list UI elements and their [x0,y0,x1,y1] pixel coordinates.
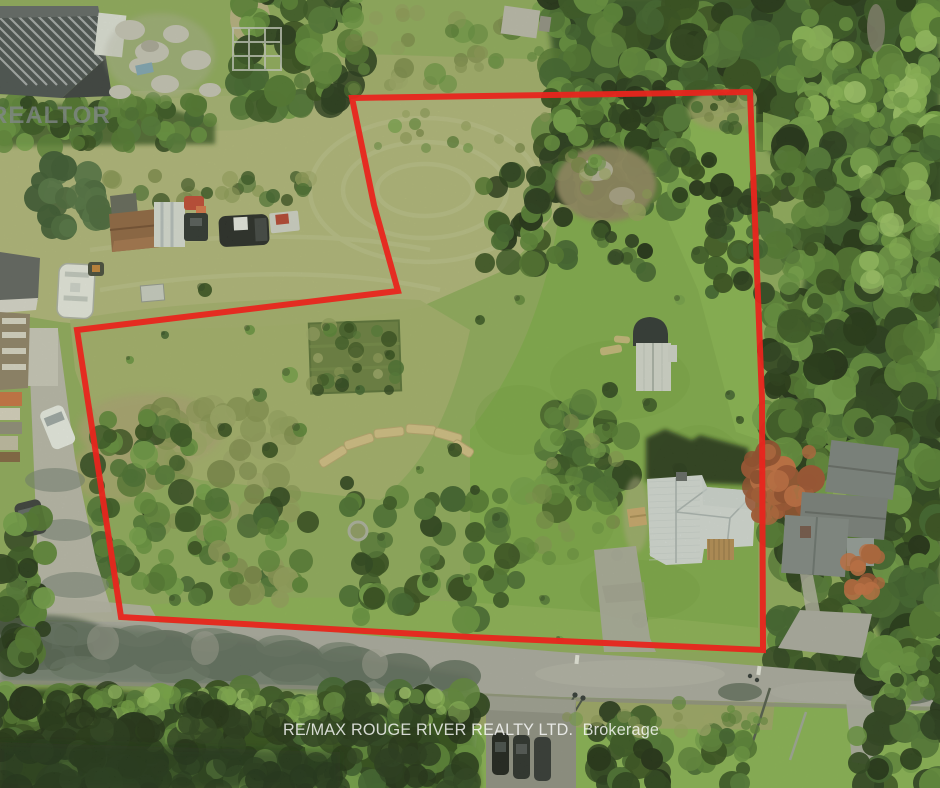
svg-text:RE/MAX ROUGE RIVER REALTY LTD.: RE/MAX ROUGE RIVER REALTY LTD. Brokerage [283,721,659,739]
svg-text:REALTOR: REALTOR [0,102,111,129]
